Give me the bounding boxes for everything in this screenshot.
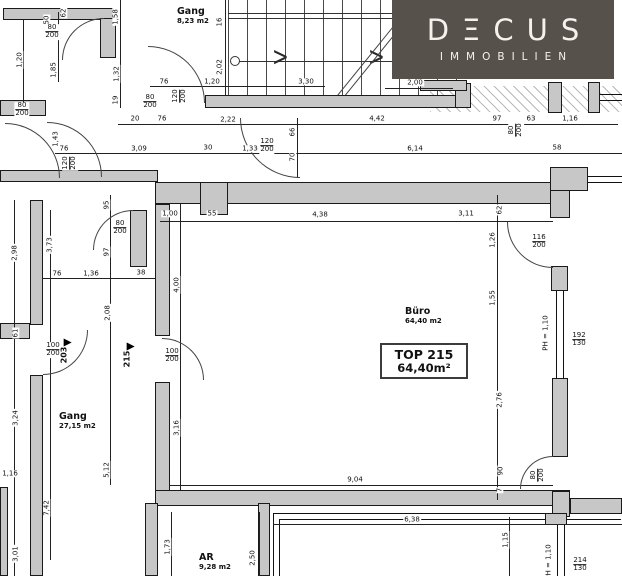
- adjacent-room-inner-wall: [279, 519, 621, 576]
- dimension-label: 58: [552, 144, 563, 151]
- room-name: Gang: [177, 6, 209, 17]
- dimension-label: 5,12: [103, 461, 110, 479]
- dimension-label: 95: [103, 200, 110, 211]
- window-line: [600, 100, 622, 101]
- wall-segment: [548, 82, 562, 113]
- dimension-label: 90: [497, 466, 504, 477]
- room-label: Gang8,23 m2: [177, 6, 209, 25]
- door-arrow-icon: [127, 343, 135, 351]
- dimension-label: 80200: [112, 220, 127, 236]
- wall-segment: [552, 378, 568, 457]
- dimension-label: 62: [60, 8, 67, 19]
- dimension-label: 1,16: [561, 115, 579, 122]
- room-area: 8,23 m2: [177, 17, 209, 25]
- dimension-label: 4,38: [311, 211, 329, 218]
- dimension-label: 1,15: [502, 531, 509, 549]
- dimension-line: [58, 12, 59, 82]
- window-line: [588, 176, 622, 177]
- dimension-label: 4,42: [368, 115, 386, 122]
- dimension-label: 3,73: [46, 236, 53, 254]
- unit-number: TOP 215: [395, 348, 454, 362]
- wall-segment: [570, 498, 622, 514]
- dimension-label: 1,85: [50, 61, 57, 79]
- dimension-label: 2,02: [216, 58, 223, 76]
- dimension-label: 214130: [572, 557, 587, 573]
- dimension-label: 7: [496, 487, 503, 493]
- dimension-label: 30: [203, 144, 214, 151]
- dimension-line: [118, 124, 618, 125]
- dimension-label: 63: [526, 115, 537, 122]
- dimension-line: [160, 221, 553, 222]
- dimension-line: [273, 524, 622, 525]
- wall-segment: [145, 503, 158, 576]
- wall-segment: [30, 375, 43, 576]
- dimension-label: 76: [159, 78, 170, 85]
- room-area: 27,15 m2: [59, 422, 96, 430]
- dimension-label: 80200: [14, 102, 29, 118]
- dimension-label: 2,76: [496, 391, 503, 409]
- dimension-label: PH = 1,10: [545, 543, 552, 576]
- floor-plan: > > TOP 215 64,40m² DΞCUS IMMOBILIEN 506…: [0, 0, 622, 576]
- dimension-label: 120200: [172, 88, 188, 103]
- unit-area: 64,40m²: [397, 362, 450, 375]
- wall-segment: [588, 82, 600, 113]
- wall-segment: [551, 266, 568, 291]
- dimension-label: 6,38: [403, 516, 421, 523]
- dimension-label: 55: [207, 210, 218, 217]
- logo-subtitle: IMMOBILIEN: [433, 52, 573, 63]
- room-label: Gang27,15 m2: [59, 411, 96, 430]
- room-name: Gang: [59, 411, 96, 422]
- window-line: [563, 291, 564, 378]
- dimension-label: 100200: [164, 348, 179, 364]
- dimension-label: 2,00: [406, 79, 424, 86]
- door-arrow-icon: [64, 339, 72, 347]
- wall-segment: [420, 80, 467, 91]
- dimension-label: 1,32: [113, 65, 120, 83]
- window-line: [588, 182, 622, 183]
- logo: DΞCUS IMMOBILIEN: [392, 0, 614, 79]
- dimension-label: 9,04: [346, 476, 364, 483]
- dimension-label: 1,36: [82, 270, 100, 277]
- dimension-label: 7,42: [43, 499, 50, 517]
- door-number-marker: 215: [119, 347, 136, 366]
- wall-segment: [155, 382, 170, 492]
- window-line: [556, 291, 557, 378]
- dimension-label: 38: [136, 269, 147, 276]
- dimension-line: [55, 153, 622, 154]
- dimension-label: 116200: [531, 234, 546, 250]
- dimension-label: 120200: [62, 155, 78, 170]
- room-name: AR: [199, 552, 231, 563]
- dimension-label: 97: [492, 115, 503, 122]
- stair-walkline-start-icon: [230, 56, 240, 66]
- unit-label-box: TOP 215 64,40m²: [380, 343, 468, 379]
- dimension-label: 3,30: [297, 78, 315, 85]
- dimension-label: 62: [496, 205, 503, 216]
- dimension-label: 80200: [508, 122, 524, 137]
- dimension-label: 70: [289, 152, 296, 163]
- window-line: [564, 525, 565, 576]
- dimension-line: [385, 88, 453, 89]
- wall-segment: [205, 95, 458, 108]
- door-swing-arc: [62, 18, 104, 60]
- dimension-label: 66: [289, 127, 296, 138]
- room-area: 64,40 m2: [405, 317, 442, 325]
- dimension-label: 1,20: [16, 51, 23, 69]
- dimension-line: [120, 0, 121, 108]
- dimension-label: 6,14: [406, 145, 424, 152]
- stair-direction-arrow-icon: >: [272, 43, 289, 70]
- window-line: [600, 94, 622, 95]
- dimension-label: 1,33: [241, 145, 259, 152]
- dimension-label: 1,20: [203, 78, 221, 85]
- dimension-label: 192130: [571, 332, 586, 348]
- dimension-label: 97: [103, 247, 110, 258]
- dimension-label: 2,98: [11, 244, 18, 262]
- adjacent-room: [273, 513, 621, 576]
- dimension-label: 3,11: [457, 210, 475, 217]
- dimension-line: [43, 278, 155, 279]
- logo-wordmark: DΞCUS: [414, 16, 593, 45]
- dimension-label: 19: [112, 95, 119, 106]
- dimension-label: 3,09: [130, 145, 148, 152]
- dimension-label: 76: [157, 115, 168, 122]
- wall-segment: [550, 167, 588, 191]
- wall-segment: [0, 487, 8, 576]
- window-line: [557, 525, 558, 576]
- dimension-label: 4,00: [173, 276, 180, 294]
- dimension-label: 61: [12, 328, 19, 339]
- dimension-label: 76: [59, 145, 70, 152]
- door-number: 215: [123, 351, 132, 368]
- dimension-label: 16: [216, 17, 223, 28]
- dimension-label: PH = 1,10: [542, 314, 549, 351]
- dimension-label: 2,50: [249, 549, 256, 567]
- dimension-label: 80200: [44, 24, 59, 40]
- dimension-line: [225, 0, 226, 95]
- room-label: AR9,28 m2: [199, 552, 231, 571]
- dimension-label: 1,73: [164, 538, 171, 556]
- dimension-label: 1,00: [161, 210, 179, 217]
- dimension-label: 20: [130, 115, 141, 122]
- dimension-label: 2,22: [219, 116, 237, 123]
- dimension-label: 1,58: [112, 8, 119, 26]
- dimension-label: 80200: [530, 467, 546, 482]
- door-number-marker: 203: [56, 343, 73, 362]
- dimension-label: 2,08: [104, 304, 111, 322]
- wall-segment: [550, 190, 570, 218]
- wall-segment: [30, 200, 43, 325]
- dimension-label: 3,16: [173, 419, 180, 437]
- dimension-label: 1,55: [489, 289, 496, 307]
- dimension-label: 3,01: [12, 545, 19, 563]
- room-name: Büro: [405, 306, 442, 317]
- dimension-label: 120200: [259, 138, 274, 154]
- room-label: Büro64,40 m2: [405, 306, 442, 325]
- door-number: 203: [60, 347, 69, 364]
- dimension-label: 1,16: [1, 470, 19, 477]
- dimension-line: [259, 512, 260, 576]
- dimension-label: 76: [52, 270, 63, 277]
- wall-segment: [155, 204, 170, 336]
- dimension-label: 80200: [142, 94, 157, 110]
- dimension-line: [497, 195, 498, 500]
- dimension-label: 3,24: [12, 409, 19, 427]
- room-area: 9,28 m2: [199, 563, 231, 571]
- dimension-label: 1,26: [489, 231, 496, 249]
- wall-segment: [155, 490, 570, 506]
